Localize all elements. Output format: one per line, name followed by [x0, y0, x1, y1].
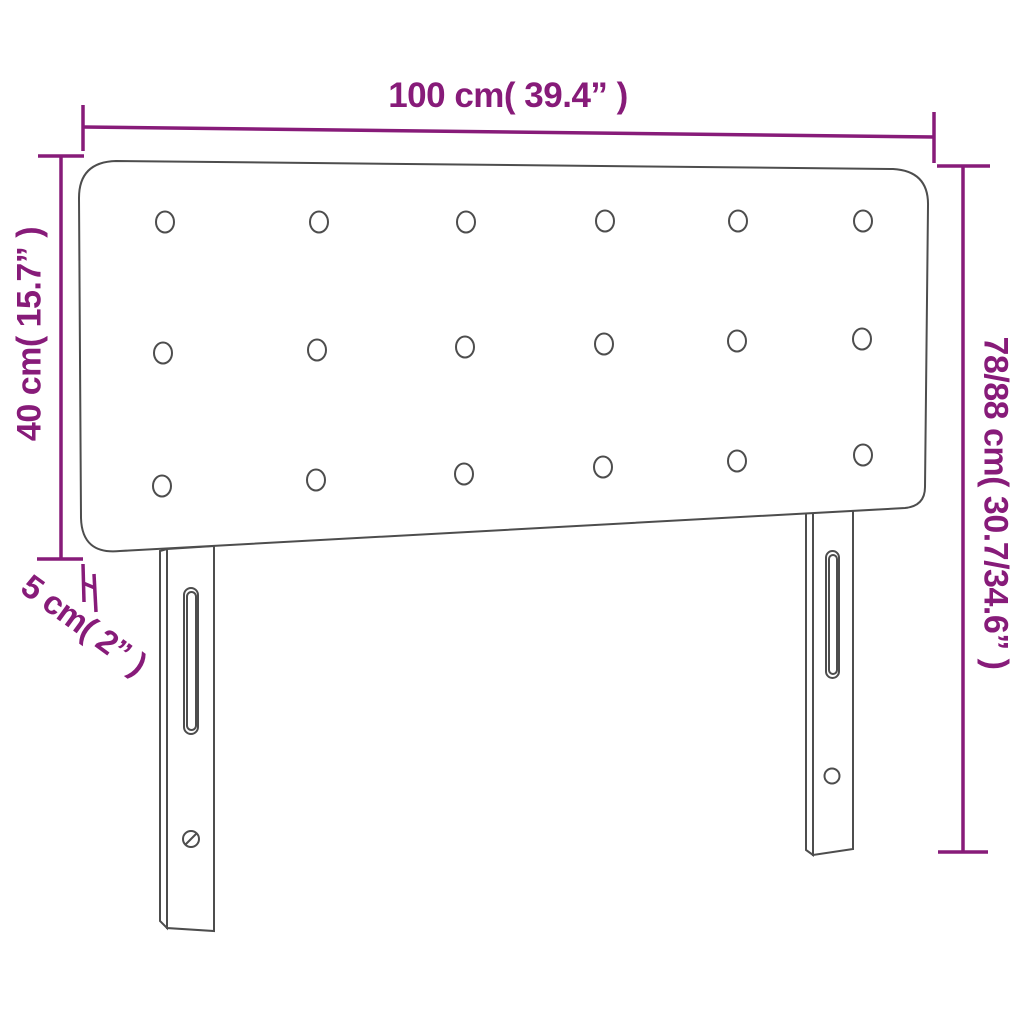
thickness-dimension-tick-right	[94, 574, 96, 612]
right-leg-side-face	[806, 511, 813, 855]
right-leg-front-face	[813, 508, 853, 855]
right-leg	[806, 508, 853, 855]
left-leg	[160, 546, 214, 931]
product-dimension-image: 100 cm( 39.4” ) 40 cm( 15.7” ) 78/88 cm(…	[0, 0, 1024, 1024]
panel-height-dimension-label: 40 cm( 15.7” )	[11, 227, 50, 441]
headboard-outline	[79, 161, 928, 551]
left-leg-front-face	[167, 546, 214, 931]
total-height-dimension-label: 78/88 cm( 30.7/34.6” )	[976, 336, 1015, 669]
left-leg-side-face	[160, 549, 167, 928]
width-dimension-line	[83, 127, 934, 137]
width-dimension-label: 100 cm( 39.4” )	[388, 76, 628, 116]
headboard-drawing	[0, 0, 1024, 1024]
